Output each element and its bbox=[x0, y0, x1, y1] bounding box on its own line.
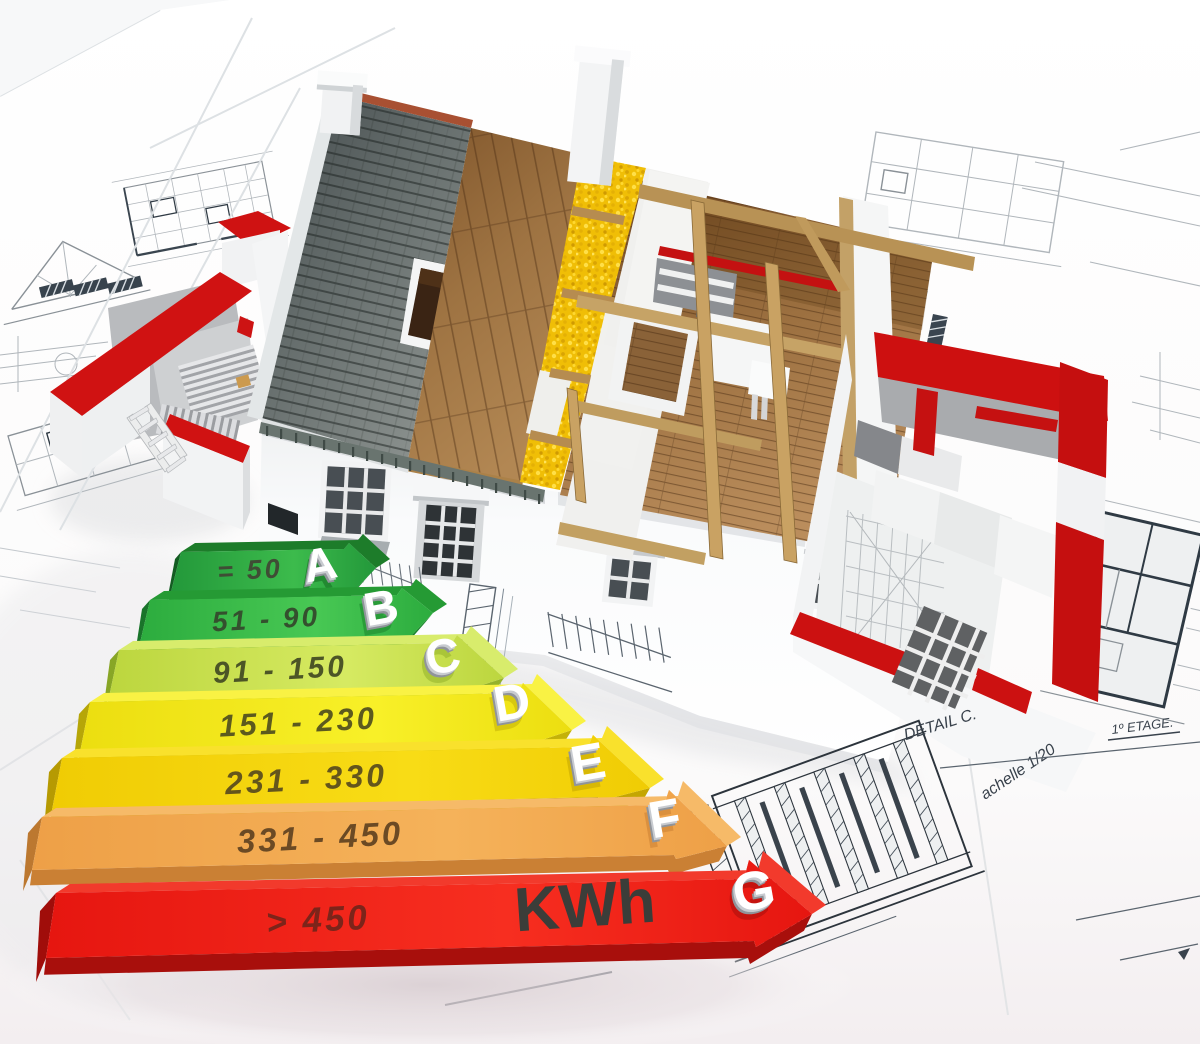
svg-text:KWh: KWh bbox=[512, 867, 658, 946]
svg-text:51 - 90: 51 - 90 bbox=[211, 601, 321, 638]
svg-text:> 450: > 450 bbox=[265, 898, 370, 942]
svg-text:91 - 150: 91 - 150 bbox=[212, 650, 348, 690]
svg-text:= 50: = 50 bbox=[217, 553, 284, 586]
